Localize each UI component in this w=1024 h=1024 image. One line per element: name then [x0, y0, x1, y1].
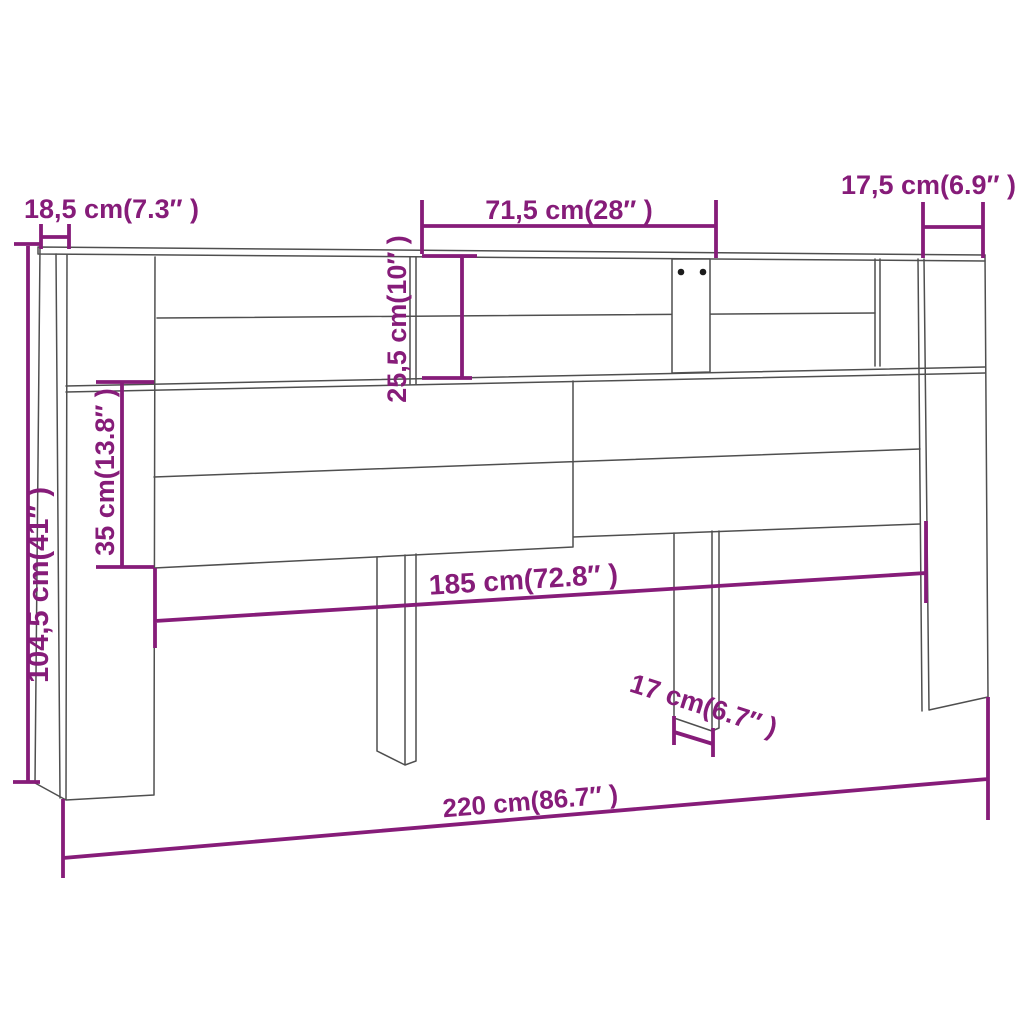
dim-line-right-top-depth: [923, 202, 983, 258]
dim-label-right-top-depth: 17,5 cm(6.9″ ): [841, 170, 1016, 200]
dim-line-shelf-height: [422, 256, 477, 378]
shelf-divider-right: [875, 259, 880, 366]
cam-hole-dot: [678, 269, 685, 276]
dim-label-leg-width: 17 cm(6.7″ ): [626, 668, 780, 742]
dimension-labels: 18,5 cm(7.3″ ) 71,5 cm(28″ ) 17,5 cm(6.9…: [23, 170, 1016, 823]
dim-line-left-top-depth: [41, 224, 69, 249]
shelf-bottom-board: [66, 367, 985, 392]
dim-label-top-shelf-width: 71,5 cm(28″ ): [485, 195, 653, 225]
dim-label-left-top-depth: 18,5 cm(7.3″ ): [24, 194, 199, 224]
dimension-diagram-page: 18,5 cm(7.3″ ) 71,5 cm(28″ ) 17,5 cm(6.9…: [0, 0, 1024, 1024]
dim-label-total-height: 104,5 cm(41″ ): [23, 487, 55, 683]
cam-hole-dot: [700, 269, 707, 276]
headboard-dimension-diagram: 18,5 cm(7.3″ ) 71,5 cm(28″ ) 17,5 cm(6.9…: [0, 0, 1024, 1024]
dimension-lines: [13, 200, 988, 878]
headboard-outline: [35, 247, 988, 800]
shelf-divider-pillar: [672, 259, 710, 373]
shelf-mid-line: [157, 313, 875, 318]
top-panel-edge: [38, 247, 985, 261]
right-side-panel: [918, 255, 988, 711]
left-middle-leg: [377, 554, 416, 765]
lower-front-panels: [154, 381, 920, 568]
dim-label-front-panel-height: 35 cm(13.8″ ): [90, 388, 120, 556]
dim-label-shelf-height: 25,5 cm(10″ ): [382, 235, 412, 403]
